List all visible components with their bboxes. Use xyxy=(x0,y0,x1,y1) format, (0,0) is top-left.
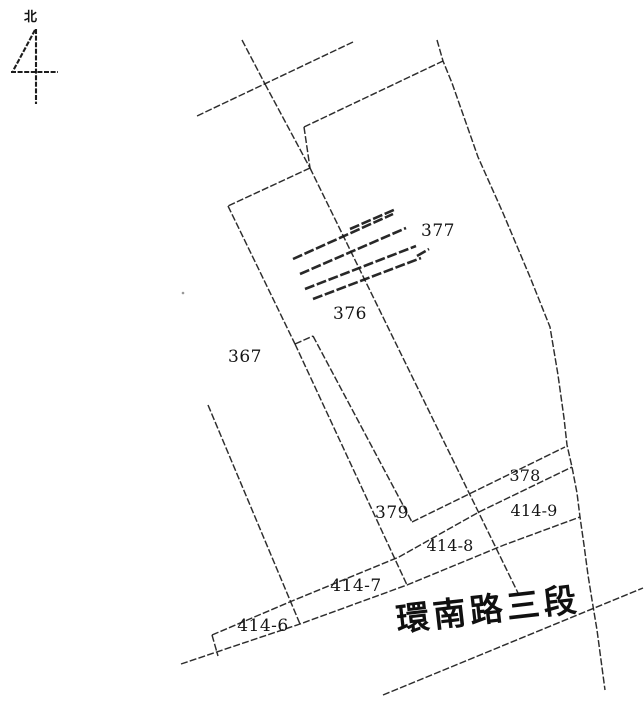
parcel-label-414-9: 414-9 xyxy=(510,501,557,520)
boundary-379-west-line xyxy=(295,344,407,585)
boundary-northwest-diagonal-line xyxy=(197,42,353,116)
parcel-label-378: 378 xyxy=(509,466,540,485)
north-arrow: 北 xyxy=(11,10,58,104)
north-label: 北 xyxy=(24,10,37,25)
boundary-north-spur-line xyxy=(242,40,265,84)
boundary-376-north-line xyxy=(228,168,310,206)
parcel-label-376: 376 xyxy=(333,304,367,324)
boundary-367-west-line xyxy=(208,405,300,624)
boundary-north-junction-line xyxy=(265,84,310,168)
parcel-label-367: 367 xyxy=(228,347,262,367)
parcel-label-377: 377 xyxy=(421,221,455,241)
boundary-north-cross-line xyxy=(304,61,443,127)
parcel-label-414-7: 414-7 xyxy=(330,576,382,596)
boundary-notch-line xyxy=(295,336,313,344)
road-name-label: 環南路三段 xyxy=(394,580,582,640)
scan-speck xyxy=(182,292,185,295)
north-arrow-diagonal xyxy=(13,30,35,71)
hatch-stroke-3 xyxy=(300,228,406,274)
parcel-label-414-6: 414-6 xyxy=(237,616,289,636)
boundary-376-377-divider-line xyxy=(310,168,520,597)
hatch-stroke-6 xyxy=(417,249,429,256)
parcel-label-414-8: 414-8 xyxy=(426,536,473,555)
hatch-stroke-1 xyxy=(350,209,396,229)
boundary-379-east-line xyxy=(313,336,412,522)
hatch-marks xyxy=(293,209,429,299)
cadastral-map-canvas: 北 xyxy=(0,0,644,720)
cadastral-map-page: 北 xyxy=(0,0,644,720)
hatch-stroke-2 xyxy=(293,214,393,259)
parcel-label-379: 379 xyxy=(375,503,409,523)
boundary-367-east-line xyxy=(228,206,295,344)
